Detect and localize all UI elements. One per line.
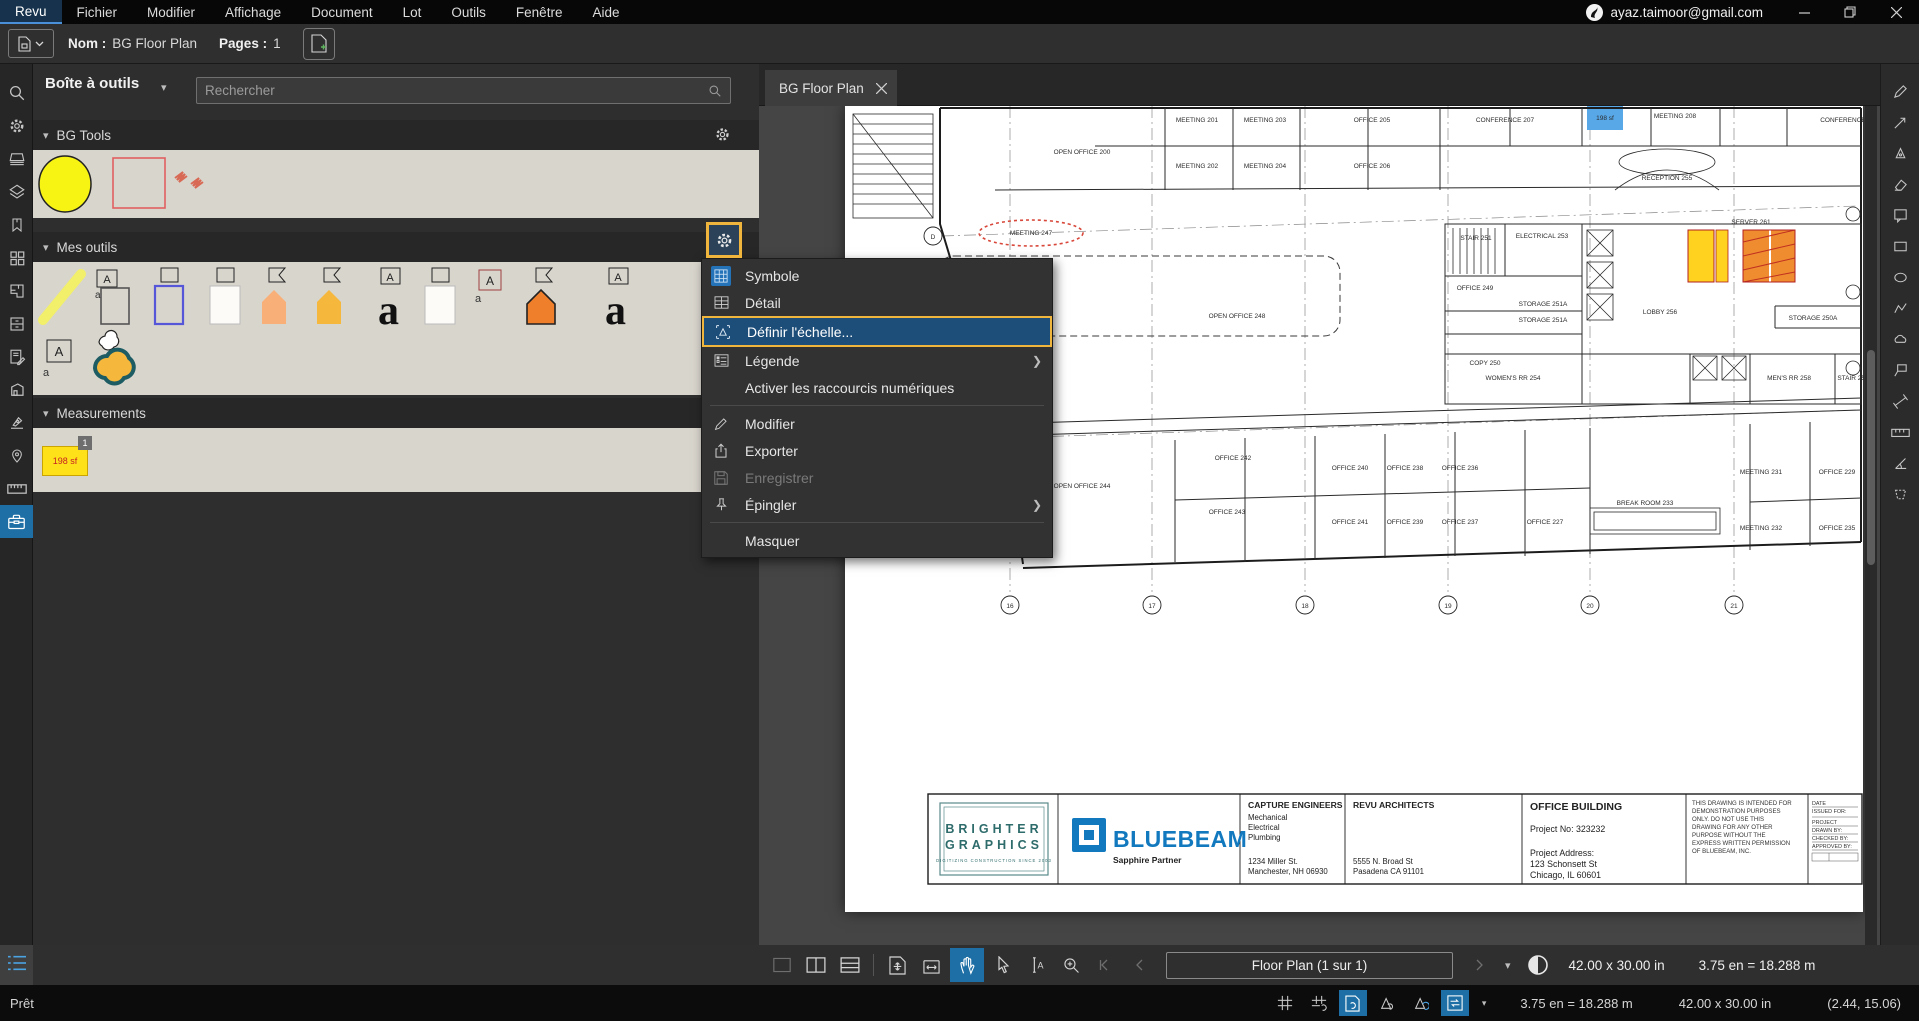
menu-fenetre[interactable]: Fenêtre bbox=[501, 0, 578, 24]
svg-text:Mechanical: Mechanical bbox=[1248, 813, 1288, 822]
room-label: MEETING 203 bbox=[1244, 117, 1287, 124]
svg-text:123 Schonsett St: 123 Schonsett St bbox=[1530, 859, 1598, 869]
tool-yellow-space[interactable] bbox=[317, 268, 341, 324]
page-nav-label: Floor Plan (1 sur 1) bbox=[1252, 958, 1368, 973]
panel-bottom-strip bbox=[33, 945, 759, 985]
tool-note-a[interactable]: Aa bbox=[43, 340, 71, 379]
close-button[interactable] bbox=[1873, 0, 1919, 24]
search-placeholder: Rechercher bbox=[205, 83, 708, 98]
split-vertical-icon[interactable] bbox=[801, 951, 831, 979]
note-tool-icon[interactable] bbox=[1881, 200, 1919, 231]
pages-value: 1 bbox=[273, 36, 281, 51]
section-measurements[interactable]: ▾ Measurements bbox=[33, 398, 759, 428]
menu-separator bbox=[710, 522, 1044, 523]
svg-text:DRAWN BY:: DRAWN BY: bbox=[1812, 828, 1842, 834]
room-label: RECEPTION 255 bbox=[1642, 175, 1693, 182]
svg-text:a: a bbox=[43, 367, 50, 379]
room-label: MEETING 231 bbox=[1740, 469, 1783, 476]
context-menu: Symbole Détail Définir l'échelle... Lége… bbox=[701, 258, 1053, 558]
bg-tools-row bbox=[33, 150, 759, 218]
title-block: BRIGHTER GRAPHICS DIGITIZING CONSTRUCTIO… bbox=[928, 794, 1862, 884]
grid-bubble-label: 19 bbox=[1444, 603, 1452, 610]
measurement-count-badge: 1 bbox=[78, 436, 92, 450]
split-horizontal-icon[interactable] bbox=[835, 951, 865, 979]
pin-icon bbox=[711, 495, 731, 515]
menu-affichage[interactable]: Affichage bbox=[210, 0, 296, 24]
measurement-tool-item[interactable]: 198 sf bbox=[42, 446, 88, 476]
pencil-tool-icon[interactable] bbox=[1881, 76, 1919, 107]
ellipse-tool-icon[interactable] bbox=[1881, 262, 1919, 293]
grid-bubble-label: 18 bbox=[1301, 603, 1309, 610]
bookmarks-icon[interactable] bbox=[0, 208, 33, 241]
svg-text:BLUEBEAM: BLUEBEAM bbox=[1113, 826, 1247, 852]
room-label: OFFICE 235 bbox=[1819, 525, 1856, 532]
room-label: SERVER 261 bbox=[1731, 219, 1771, 226]
tool-callout-a[interactable]: Aa bbox=[475, 270, 501, 305]
tool-blue-rectangle[interactable] bbox=[155, 268, 183, 324]
status-chevron-icon[interactable]: ▾ bbox=[1482, 998, 1487, 1009]
document-switcher[interactable] bbox=[8, 29, 54, 58]
menu-aide[interactable]: Aide bbox=[577, 0, 634, 24]
room-label: OFFICE 227 bbox=[1527, 519, 1564, 526]
document-tabbar: BG Floor Plan ▾ bbox=[759, 64, 1919, 106]
svg-text:DATE: DATE bbox=[1812, 801, 1826, 807]
svg-text:REVU ARCHITECTS: REVU ARCHITECTS bbox=[1353, 800, 1435, 810]
svg-text:Pasadena CA 91101: Pasadena CA 91101 bbox=[1353, 867, 1424, 876]
export-icon bbox=[711, 441, 731, 461]
nom-value: BG Floor Plan bbox=[112, 36, 197, 51]
menu-item-label: Exporter bbox=[745, 443, 798, 459]
detail-table-icon bbox=[711, 293, 731, 313]
search-input[interactable]: Rechercher bbox=[196, 77, 731, 104]
menu-item-label: Épingler bbox=[745, 497, 796, 513]
office-building-block: OFFICE BUILDING Project No: 323232 Proje… bbox=[1530, 801, 1622, 880]
panel-title-chevron-icon[interactable]: ▾ bbox=[161, 81, 167, 94]
svg-text:EXPRESS WRITTEN PERMISSION: EXPRESS WRITTEN PERMISSION bbox=[1692, 840, 1790, 847]
arrow-tool-icon[interactable] bbox=[1881, 107, 1919, 138]
menu-item-exporter[interactable]: Exporter bbox=[702, 437, 1052, 464]
toolbox-panel: Boîte à outils ▾ Rechercher ▾ BG Tools ▾… bbox=[33, 64, 759, 945]
scrollbar-thumb[interactable] bbox=[1867, 350, 1875, 565]
svg-text:a: a bbox=[378, 288, 399, 334]
capture-engineers-block: CAPTURE ENGINEERS Mechanical Electrical … bbox=[1248, 800, 1343, 876]
room-label: MEN'S RR 258 bbox=[1767, 375, 1811, 382]
tool-red-rectangle[interactable] bbox=[113, 158, 165, 208]
search-icon bbox=[708, 84, 722, 98]
left-sidebar bbox=[0, 64, 33, 945]
tool-cloud-space[interactable] bbox=[95, 330, 134, 383]
room-label: STORAGE 251A bbox=[1519, 301, 1568, 308]
room-label: WOMEN'S RR 254 bbox=[1485, 375, 1540, 382]
grid-snap-icon[interactable] bbox=[1271, 990, 1299, 1016]
fit-page-icon[interactable] bbox=[882, 951, 912, 979]
room-label: BREAK ROOM 233 bbox=[1617, 500, 1674, 507]
restore-button[interactable] bbox=[1827, 0, 1873, 24]
room-label: OFFICE 236 bbox=[1442, 465, 1479, 472]
properties-gear-icon[interactable] bbox=[0, 109, 33, 142]
reuse-markup-icon[interactable] bbox=[1441, 990, 1469, 1016]
menu-item-legende[interactable]: Légende ❯ bbox=[702, 347, 1052, 374]
scale-readout: 3.75 en = 18.288 m bbox=[1699, 958, 1816, 973]
svg-text:A: A bbox=[55, 344, 64, 359]
room-label: LOBBY 256 bbox=[1643, 309, 1678, 316]
svg-text:A: A bbox=[486, 274, 494, 288]
status-bar: Prêt ▾ 3.75 en = 18.288 m 42.00 x 30.00 … bbox=[0, 985, 1919, 1021]
previous-page-icon[interactable] bbox=[1124, 951, 1154, 979]
submenu-arrow-icon: ❯ bbox=[1032, 498, 1042, 512]
section-label: Measurements bbox=[57, 406, 146, 421]
gear-icon bbox=[715, 231, 734, 250]
svg-text:a: a bbox=[95, 290, 101, 301]
room-label: STORAGE 250A bbox=[1789, 315, 1838, 322]
room-label: OPEN OFFICE 248 bbox=[1209, 313, 1266, 320]
toolbox-icon[interactable] bbox=[0, 505, 33, 538]
menu-item-label: Symbole bbox=[745, 268, 799, 284]
mes-outils-row: Aa Aa Aa Aa Aa bbox=[33, 262, 759, 395]
snap-to-content-icon[interactable] bbox=[1339, 990, 1367, 1016]
menu-item-label: Masquer bbox=[745, 533, 799, 549]
markup-list-toggle[interactable] bbox=[4, 950, 30, 976]
tool-white-rectangle[interactable] bbox=[210, 268, 240, 324]
menu-item-label: Détail bbox=[745, 295, 781, 311]
svg-text:A: A bbox=[614, 272, 622, 284]
room-label: OFFICE 242 bbox=[1215, 455, 1252, 462]
svg-text:DIGITIZING CONSTRUCTION SINCE: DIGITIZING CONSTRUCTION SINCE 2003 bbox=[936, 858, 1052, 863]
room-label: OFFICE 237 bbox=[1442, 519, 1479, 526]
svg-text:Electrical: Electrical bbox=[1248, 823, 1280, 832]
chevron-down-icon: ▾ bbox=[43, 407, 49, 420]
highlighted-room-yellow-2[interactable] bbox=[1716, 230, 1728, 282]
submenu-arrow-icon: ❯ bbox=[1032, 354, 1042, 368]
menu-item-raccourcis[interactable]: Activer les raccourcis numériques bbox=[702, 374, 1052, 401]
text-select-icon[interactable]: A bbox=[1022, 951, 1052, 979]
svg-text:Manchester, NH 06930: Manchester, NH 06930 bbox=[1248, 867, 1328, 876]
menu-item-label: Définir l'échelle... bbox=[747, 324, 853, 340]
menu-item-detail[interactable]: Détail bbox=[702, 289, 1052, 316]
page-nav-chevron-icon[interactable]: ▾ bbox=[1505, 959, 1511, 972]
svg-text:CHECKED BY:: CHECKED BY: bbox=[1812, 836, 1848, 842]
legend-icon bbox=[711, 351, 731, 371]
area-tool-icon[interactable] bbox=[1881, 479, 1919, 510]
save-icon bbox=[711, 468, 731, 488]
svg-text:5555 N. Broad St: 5555 N. Broad St bbox=[1353, 857, 1414, 866]
right-tool-strip bbox=[1880, 64, 1919, 945]
fit-width-icon[interactable] bbox=[916, 951, 946, 979]
menu-item-definir-echelle[interactable]: Définir l'échelle... bbox=[702, 316, 1052, 347]
svg-text:OFFICE BUILDING: OFFICE BUILDING bbox=[1530, 801, 1622, 813]
room-label: OFFICE 243 bbox=[1209, 509, 1246, 516]
measurement-label: 198 sf bbox=[53, 456, 78, 466]
tool-yellow-ellipse[interactable] bbox=[39, 156, 91, 212]
menu-item-enregistrer: Enregistrer bbox=[702, 464, 1052, 491]
pencil-icon bbox=[711, 414, 731, 434]
highlighted-room-orange[interactable] bbox=[1743, 230, 1795, 282]
menu-item-label: Modifier bbox=[745, 416, 795, 432]
tool-text-a[interactable]: Aa bbox=[605, 268, 628, 334]
highlighted-room-yellow[interactable] bbox=[1688, 230, 1714, 282]
menu-modifier[interactable]: Modifier bbox=[132, 0, 210, 24]
svg-text:A: A bbox=[103, 274, 111, 286]
revu-window: Revu Fichier Modifier Affichage Document… bbox=[0, 0, 1919, 1021]
room-label: OFFICE 238 bbox=[1387, 465, 1424, 472]
page-nav-box[interactable]: Floor Plan (1 sur 1) bbox=[1166, 952, 1453, 979]
pan-tool-icon[interactable] bbox=[950, 948, 984, 982]
svg-text:APPROVED BY:: APPROVED BY: bbox=[1812, 844, 1852, 850]
dimension-tool-icon[interactable] bbox=[1881, 386, 1919, 417]
sketch-to-scale-icon[interactable] bbox=[1407, 990, 1435, 1016]
menu-item-epingler[interactable]: Épingler ❯ bbox=[702, 491, 1052, 518]
page-icon bbox=[18, 36, 31, 52]
room-label: STAIR 257 bbox=[1837, 375, 1863, 382]
section-label: Mes outils bbox=[57, 240, 118, 255]
svg-text:Project Address:: Project Address: bbox=[1530, 848, 1594, 858]
pen-tool-icon[interactable] bbox=[1881, 138, 1919, 169]
svg-text:THIS DRAWING IS INTENDED FOR: THIS DRAWING IS INTENDED FOR bbox=[1692, 800, 1792, 807]
svg-text:A: A bbox=[1037, 961, 1043, 971]
single-pane-icon[interactable] bbox=[767, 951, 797, 979]
grid-bubbles: 161718192021 bbox=[1001, 596, 1743, 614]
chevron-down-icon: ▾ bbox=[43, 241, 49, 254]
room-label: ELECTRICAL 253 bbox=[1516, 233, 1569, 240]
svg-text:PURPOSE WITHOUT THE: PURPOSE WITHOUT THE bbox=[1692, 832, 1766, 839]
insert-page-button[interactable] bbox=[303, 28, 335, 60]
ruler-tool-icon[interactable] bbox=[1881, 417, 1919, 448]
menu-item-label: Enregistrer bbox=[745, 470, 813, 486]
cloud-tool-icon[interactable] bbox=[1881, 324, 1919, 355]
fields-block: DATE ISSUED FOR: PROJECT DRAWN BY: CHECK… bbox=[1812, 801, 1858, 861]
svg-text:ONLY. DO NOT USE THIS: ONLY. DO NOT USE THIS bbox=[1692, 816, 1764, 823]
tool-white-rectangle[interactable] bbox=[425, 268, 455, 324]
brighter-graphics-logo: BRIGHTER GRAPHICS DIGITIZING CONSTRUCTIO… bbox=[936, 803, 1052, 875]
symbol-grid-icon bbox=[711, 266, 731, 286]
rectangle-tool-icon[interactable] bbox=[1881, 231, 1919, 262]
status-ready: Prêt bbox=[10, 996, 34, 1011]
snap-to-markup-icon[interactable] bbox=[1373, 990, 1401, 1016]
room-label: OFFICE 241 bbox=[1332, 519, 1369, 526]
spaces-icon[interactable] bbox=[0, 274, 33, 307]
grid-spacing-icon[interactable] bbox=[1305, 990, 1333, 1016]
places-icon[interactable] bbox=[0, 439, 33, 472]
grid-bubble-label: 20 bbox=[1586, 603, 1594, 610]
polyline-tool-icon[interactable] bbox=[1881, 293, 1919, 324]
svg-text:GRAPHICS: GRAPHICS bbox=[945, 838, 1043, 852]
panel-title: Boîte à outils bbox=[45, 75, 139, 92]
svg-text:CAPTURE ENGINEERS: CAPTURE ENGINEERS bbox=[1248, 800, 1343, 810]
tool-orange-space[interactable] bbox=[527, 268, 555, 324]
svg-text:OF BLUEBEAM, INC.: OF BLUEBEAM, INC. bbox=[1692, 848, 1751, 855]
room-label: 198 sf bbox=[1596, 115, 1614, 122]
chevron-down-icon: ▾ bbox=[43, 129, 49, 142]
room-label: OFFICE 249 bbox=[1457, 285, 1494, 292]
room-label: OFFICE 206 bbox=[1354, 163, 1391, 170]
svg-text:ISSUED FOR:: ISSUED FOR: bbox=[1812, 809, 1846, 815]
svg-text:Project No: 323232: Project No: 323232 bbox=[1530, 824, 1605, 834]
menu-item-masquer[interactable]: Masquer bbox=[702, 527, 1052, 554]
section-bg-tools[interactable]: ▾ BG Tools bbox=[33, 120, 759, 150]
room-label: OFFICE 240 bbox=[1332, 465, 1369, 472]
page-size-readout: 42.00 x 30.00 in bbox=[1569, 958, 1665, 973]
set-scale-icon bbox=[713, 322, 733, 342]
room-label: OPEN OFFICE 244 bbox=[1054, 483, 1111, 490]
room-label: STORAGE 251A bbox=[1519, 317, 1568, 324]
menu-fichier[interactable]: Fichier bbox=[62, 0, 133, 24]
minimize-button[interactable] bbox=[1781, 0, 1827, 24]
bg-tools-gear-icon[interactable] bbox=[707, 120, 737, 148]
disclaimer-block: THIS DRAWING IS INTENDED FOR DEMONSTRATI… bbox=[1692, 800, 1792, 855]
tool-text-a[interactable]: Aa bbox=[378, 268, 400, 334]
grid-bubble-label: D bbox=[931, 234, 936, 241]
revu-logo bbox=[1586, 4, 1603, 21]
zoom-tool-icon[interactable] bbox=[1056, 951, 1086, 979]
menu-item-symbole[interactable]: Symbole bbox=[702, 262, 1052, 289]
bottom-toolbar: A Floor Plan (1 sur 1) ▾ 42.00 x 30.00 i… bbox=[759, 945, 1919, 985]
status-scale[interactable]: 3.75 en = 18.288 m bbox=[1520, 996, 1632, 1011]
status-coords: (2.44, 15.06) bbox=[1827, 996, 1901, 1011]
svg-text:a: a bbox=[475, 293, 482, 305]
menu-item-label: Activer les raccourcis numériques bbox=[745, 380, 954, 396]
room-label: OPEN OFFICE 200 bbox=[1054, 149, 1111, 156]
room-label: STAIR 251 bbox=[1460, 235, 1492, 242]
svg-text:DEMONSTRATION PURPOSES: DEMONSTRATION PURPOSES bbox=[1692, 808, 1781, 815]
select-tool-icon[interactable] bbox=[988, 951, 1018, 979]
filebar: Nom : BG Floor Plan Pages : 1 bbox=[0, 24, 1919, 64]
menu-revu[interactable]: Revu bbox=[0, 0, 62, 24]
tool-highlight-line[interactable] bbox=[43, 274, 81, 320]
account-email[interactable]: ayaz.taimoor@gmail.com bbox=[1610, 5, 1763, 20]
tool-peach-space[interactable] bbox=[262, 268, 286, 324]
tab-label: BG Floor Plan bbox=[779, 81, 864, 96]
first-page-icon[interactable] bbox=[1090, 951, 1120, 979]
tool-sets-icon[interactable] bbox=[0, 241, 33, 274]
menu-outils[interactable]: Outils bbox=[436, 0, 501, 24]
status-size: 42.00 x 30.00 in bbox=[1679, 996, 1772, 1011]
angle-tool-icon[interactable] bbox=[1881, 448, 1919, 479]
next-page-icon[interactable] bbox=[1465, 951, 1495, 979]
menu-document[interactable]: Document bbox=[296, 0, 388, 24]
studio-icon[interactable] bbox=[0, 373, 33, 406]
svg-text:Plumbing: Plumbing bbox=[1248, 833, 1281, 842]
room-label: MEETING 232 bbox=[1740, 525, 1783, 532]
room-label: MEETING 201 bbox=[1176, 117, 1219, 124]
room-label: COPY 250 bbox=[1470, 360, 1501, 367]
menu-lot[interactable]: Lot bbox=[388, 0, 437, 24]
measurements-row: 198 sf 1 bbox=[33, 428, 759, 492]
room-label: CONFERENCE bbox=[1820, 117, 1863, 124]
grid-bubble-label: 17 bbox=[1148, 603, 1156, 610]
grid-bubble-label: 21 bbox=[1730, 603, 1738, 610]
room-label: MEETING 202 bbox=[1176, 163, 1219, 170]
svg-text:Sapphire Partner: Sapphire Partner bbox=[1113, 855, 1182, 865]
layers-icon[interactable] bbox=[0, 175, 33, 208]
menu-item-modifier[interactable]: Modifier bbox=[702, 410, 1052, 437]
bluebeam-logo: BLUEBEAM Sapphire Partner bbox=[1072, 818, 1247, 865]
room-label: OFFICE 205 bbox=[1354, 117, 1391, 124]
eraser-tool-icon[interactable] bbox=[1881, 169, 1919, 200]
revu-architects-block: REVU ARCHITECTS 5555 N. Broad St Pasaden… bbox=[1353, 800, 1435, 876]
callout-tool-icon[interactable] bbox=[1881, 355, 1919, 386]
chevron-down-icon bbox=[35, 41, 44, 47]
document-tab[interactable]: BG Floor Plan bbox=[765, 70, 897, 106]
vertical-scrollbar[interactable] bbox=[1865, 106, 1877, 945]
room-label: MEETING 208 bbox=[1654, 113, 1697, 120]
svg-text:a: a bbox=[605, 288, 626, 334]
room-label: MEETING 247 bbox=[1010, 230, 1053, 237]
tab-close-icon[interactable] bbox=[876, 83, 887, 94]
room-label: OFFICE 239 bbox=[1387, 519, 1424, 526]
room-label: CONFERENCE 207 bbox=[1476, 117, 1535, 124]
nom-label: Nom : bbox=[68, 36, 106, 51]
pages-label: Pages : bbox=[219, 36, 267, 51]
section-label: BG Tools bbox=[57, 128, 112, 143]
grid-bubble-label: 16 bbox=[1006, 603, 1014, 610]
measure-icon[interactable] bbox=[0, 472, 33, 505]
mes-outils-gear-button[interactable] bbox=[706, 222, 742, 258]
toolbar-divider bbox=[873, 954, 874, 976]
contrast-icon[interactable] bbox=[1527, 954, 1549, 976]
svg-text:BRIGHTER: BRIGHTER bbox=[945, 822, 1042, 836]
svg-text:Chicago, IL 60601: Chicago, IL 60601 bbox=[1530, 870, 1601, 880]
svg-text:DRAWING FOR ANY OTHER: DRAWING FOR ANY OTHER bbox=[1692, 824, 1773, 831]
file-access-icon[interactable] bbox=[0, 307, 33, 340]
markup-list-icon[interactable] bbox=[0, 340, 33, 373]
search-icon[interactable] bbox=[0, 76, 33, 109]
menu-separator bbox=[710, 405, 1044, 406]
tool-red-squiggle[interactable] bbox=[175, 172, 203, 188]
thumbnails-icon[interactable] bbox=[0, 142, 33, 175]
room-labels: MEETING 201MEETING 203OFFICE 205CONFEREN… bbox=[1010, 113, 1863, 532]
svg-text:1234 Miller St.: 1234 Miller St. bbox=[1248, 857, 1298, 866]
room-label: MEETING 204 bbox=[1244, 163, 1287, 170]
svg-text:A: A bbox=[386, 272, 394, 284]
menubar: Revu Fichier Modifier Affichage Document… bbox=[0, 0, 1919, 24]
svg-text:PROJECT: PROJECT bbox=[1812, 820, 1838, 826]
menu-item-label: Légende bbox=[745, 353, 800, 369]
room-label: OFFICE 229 bbox=[1819, 469, 1856, 476]
section-mes-outils[interactable]: ▾ Mes outils bbox=[33, 232, 759, 262]
calibrate-icon[interactable] bbox=[0, 406, 33, 439]
tool-text-box[interactable]: Aa bbox=[95, 270, 129, 324]
